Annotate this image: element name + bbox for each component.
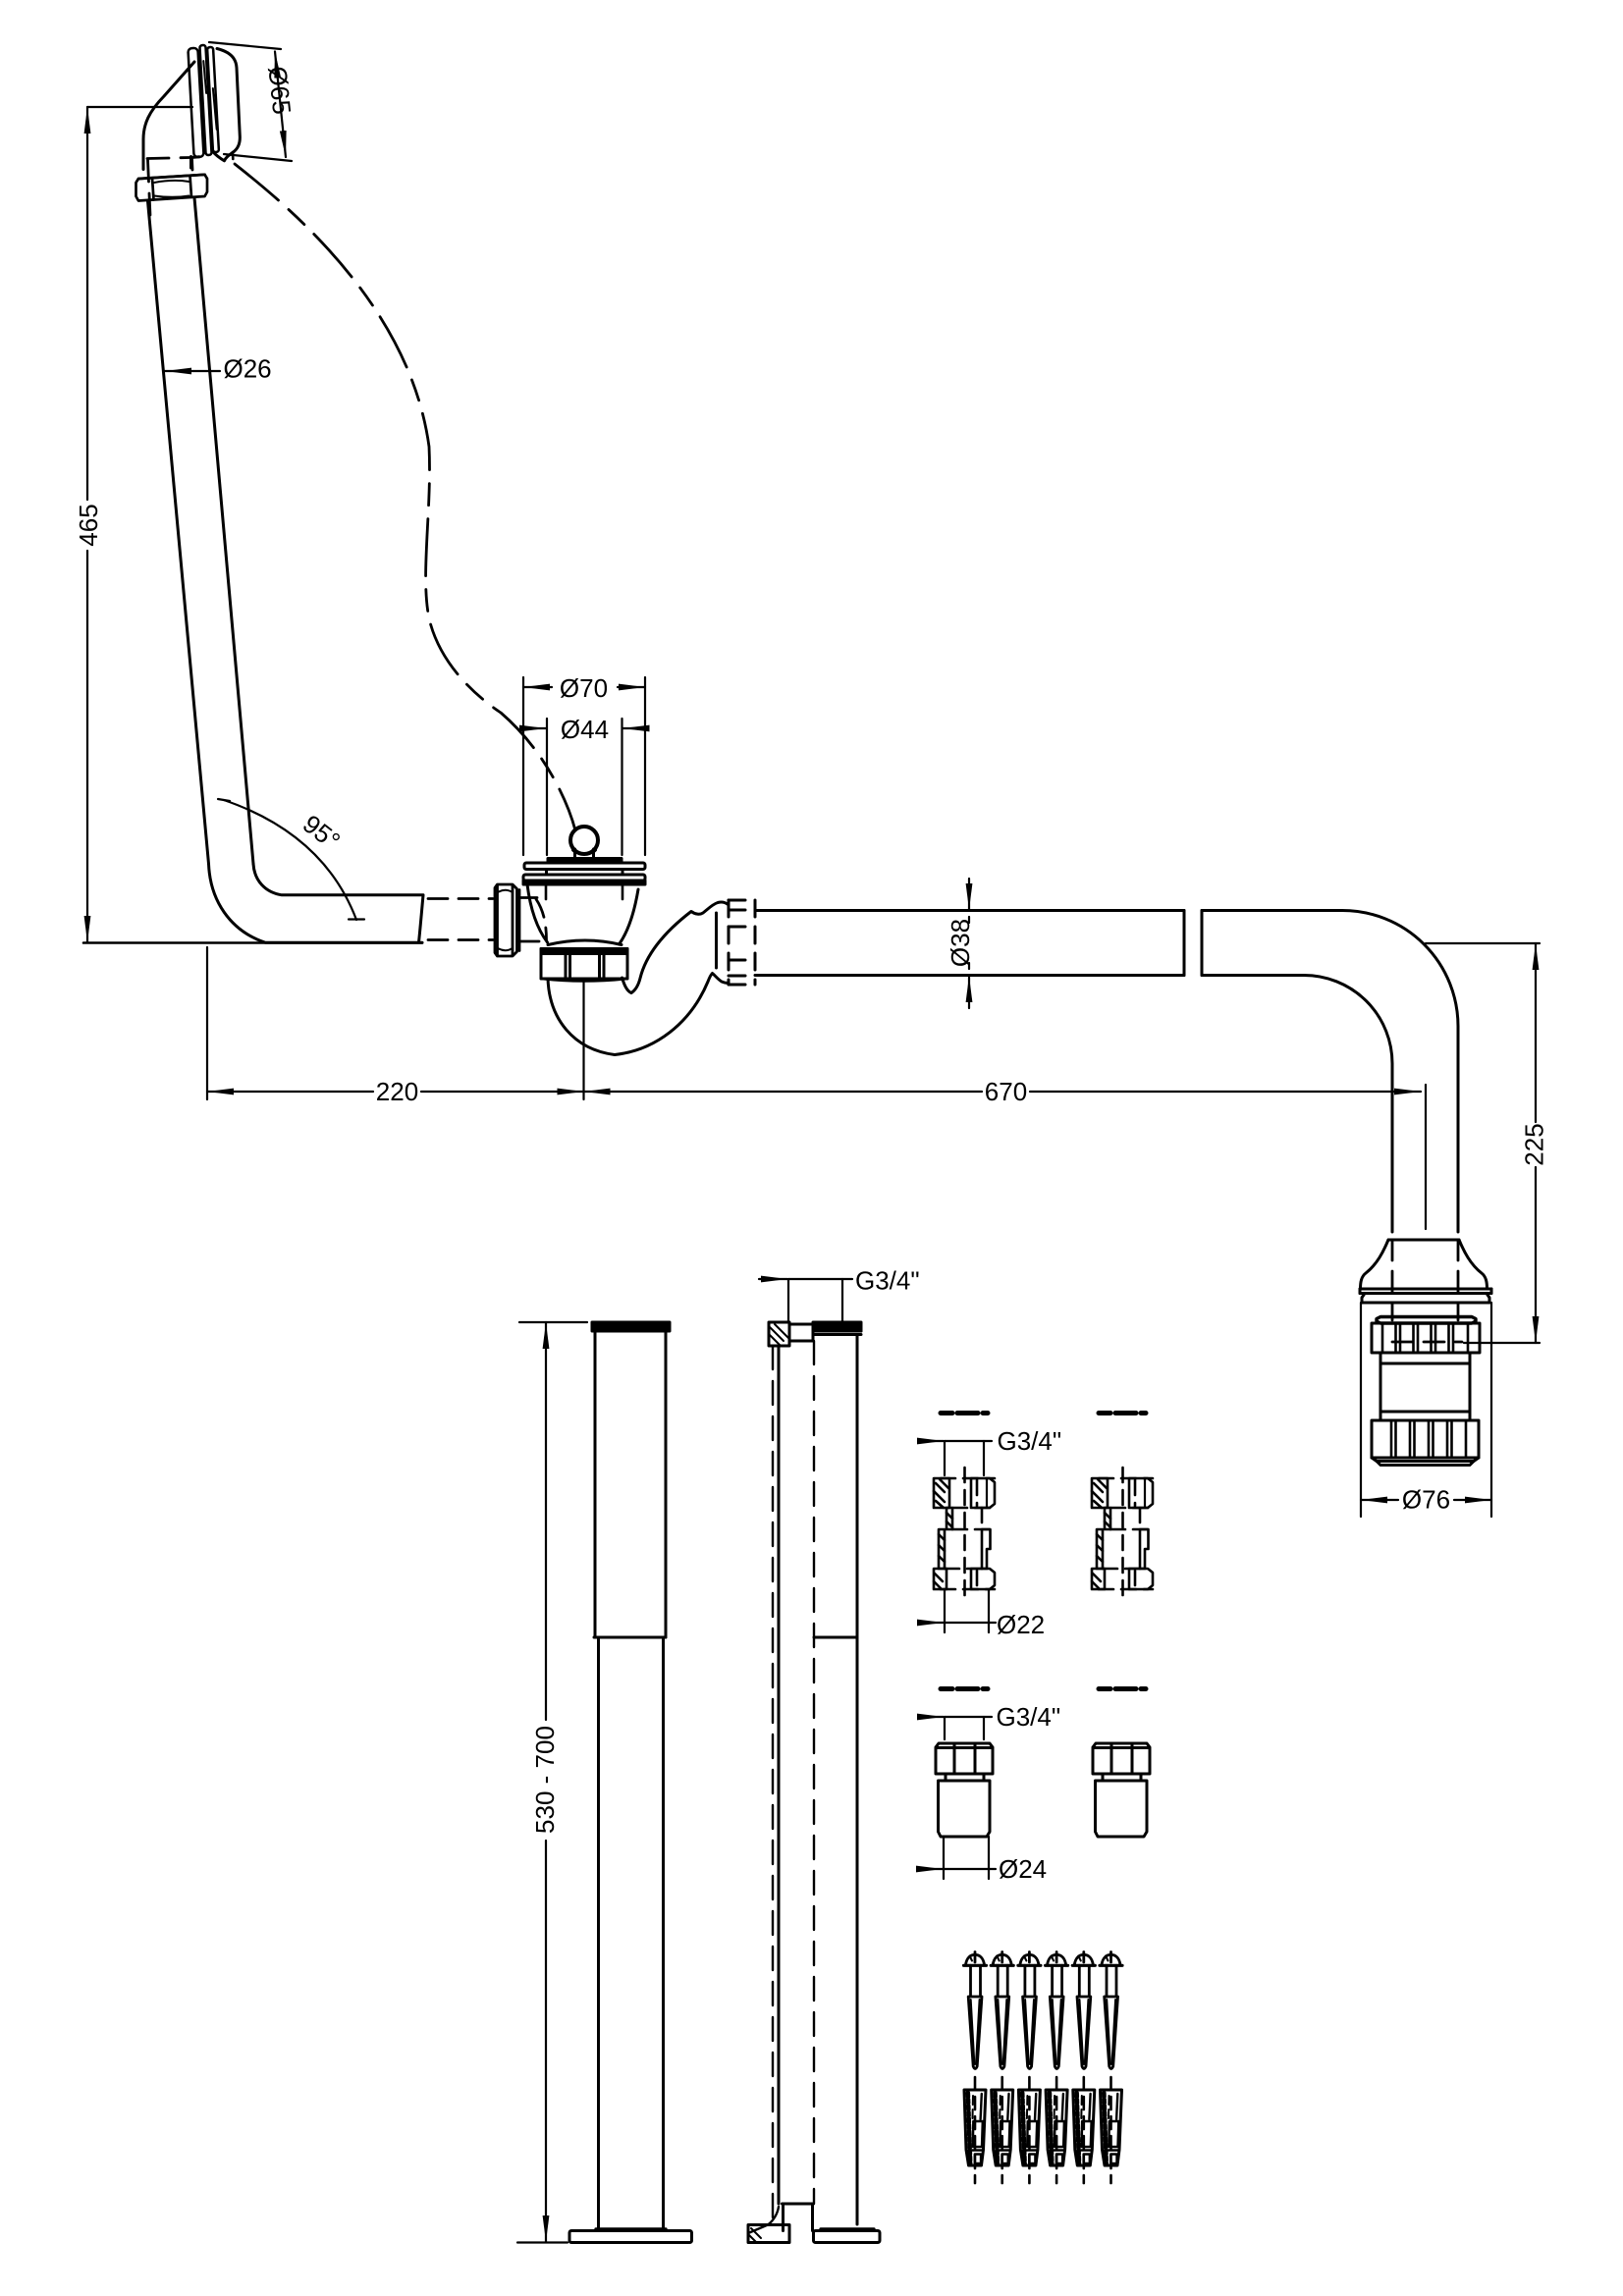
svg-text:Ø65: Ø65 (262, 65, 297, 116)
svg-text:Ø22: Ø22 (997, 1610, 1045, 1639)
svg-text:95°: 95° (298, 809, 346, 856)
svg-text:G3/4": G3/4" (997, 1702, 1061, 1732)
svg-text:Ø44: Ø44 (561, 715, 609, 744)
svg-text:225: 225 (1520, 1123, 1549, 1165)
svg-text:Ø70: Ø70 (560, 673, 608, 703)
svg-text:220: 220 (376, 1077, 418, 1106)
svg-text:465: 465 (74, 504, 103, 546)
svg-text:G3/4": G3/4" (855, 1266, 920, 1296)
svg-text:Ø38: Ø38 (946, 919, 975, 967)
svg-text:Ø24: Ø24 (999, 1854, 1047, 1884)
svg-text:Ø76: Ø76 (1402, 1485, 1450, 1515)
svg-text:Ø26: Ø26 (224, 354, 272, 384)
svg-text:G3/4": G3/4" (998, 1426, 1062, 1456)
svg-text:670: 670 (985, 1077, 1027, 1106)
svg-text:530 - 700: 530 - 700 (530, 1726, 560, 1834)
